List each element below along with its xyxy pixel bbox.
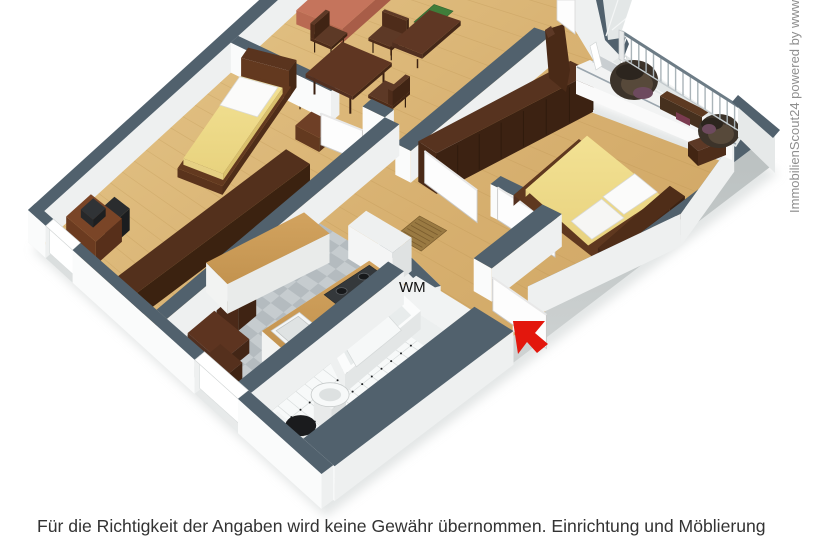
svg-text:Für die Richtigkeit der Angabe: Für die Richtigkeit der Angaben wird kei… xyxy=(37,516,766,536)
svg-text:WM: WM xyxy=(399,279,426,296)
svg-text:ImmobilienScout24 powered by w: ImmobilienScout24 powered by www.dietz-d… xyxy=(787,0,802,213)
